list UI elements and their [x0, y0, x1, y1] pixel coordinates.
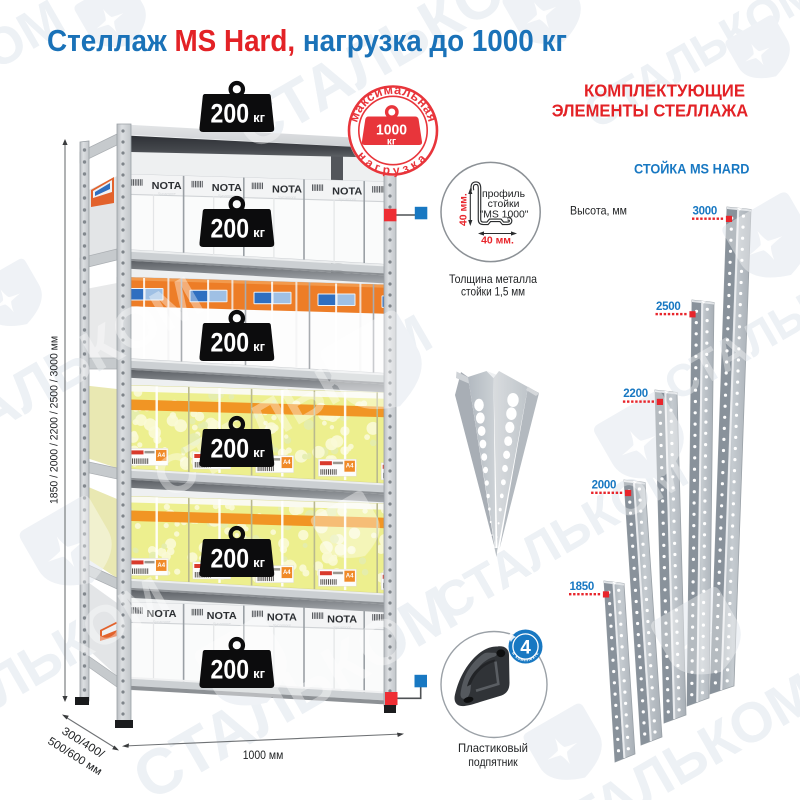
svg-text:КОМПЛЕКТУЮЩИЕ: КОМПЛЕКТУЮЩИЕ	[584, 81, 745, 101]
svg-text:40 мм.: 40 мм.	[481, 236, 514, 247]
svg-text:40 мм.: 40 мм.	[459, 193, 470, 226]
svg-text:200: 200	[211, 655, 250, 685]
svg-text:Стеллаж MS Hard, нагрузка до 1: Стеллаж MS Hard, нагрузка до 1000 кг	[47, 24, 567, 58]
svg-text:A4: A4	[283, 570, 291, 576]
svg-text:ЭЛЕМЕНТЫ СТЕЛЛАЖА: ЭЛЕМЕНТЫ СТЕЛЛАЖА	[552, 101, 749, 121]
svg-text:кг: кг	[253, 445, 266, 460]
svg-text:A4: A4	[283, 460, 291, 466]
svg-text:кг: кг	[253, 110, 266, 125]
svg-text:1850: 1850	[570, 581, 595, 593]
svg-text:200: 200	[211, 214, 250, 244]
svg-text:1000 мм: 1000 мм	[243, 750, 284, 762]
svg-text:кг: кг	[253, 666, 266, 681]
svg-text:Высота, мм: Высота, мм	[570, 204, 627, 218]
svg-text:4: 4	[520, 638, 531, 659]
svg-text:Sycamore: Sycamore	[278, 195, 297, 200]
svg-text:A4: A4	[346, 574, 354, 580]
svg-text:подпятник: подпятник	[468, 755, 518, 769]
svg-text:A4: A4	[157, 563, 165, 569]
svg-text:Sycamore: Sycamore	[158, 191, 177, 196]
svg-text:кг: кг	[253, 555, 266, 570]
svg-text:СТОЙКА MS HARD: СТОЙКА MS HARD	[634, 160, 749, 177]
svg-text:Sycamore: Sycamore	[273, 623, 292, 628]
svg-text:стойки 1,5 мм: стойки 1,5 мм	[461, 285, 525, 299]
svg-text:1850 / 2000 / 2200 / 2500 / 30: 1850 / 2000 / 2200 / 2500 / 3000 мм	[49, 336, 61, 504]
svg-text:Sycamore: Sycamore	[338, 196, 357, 201]
svg-text:200: 200	[211, 99, 250, 129]
svg-text:кг: кг	[253, 225, 266, 240]
svg-text:2500: 2500	[656, 301, 681, 313]
svg-text:2000: 2000	[592, 479, 617, 491]
svg-text:кг: кг	[253, 339, 266, 354]
svg-text:3000: 3000	[693, 205, 718, 217]
svg-text:Sycamore: Sycamore	[213, 621, 232, 626]
svg-text:A4: A4	[346, 464, 354, 470]
svg-text:2200: 2200	[623, 388, 648, 400]
svg-text:200: 200	[211, 434, 250, 464]
svg-text:200: 200	[211, 328, 250, 358]
svg-text:200: 200	[211, 544, 250, 574]
svg-text:кг: кг	[387, 137, 396, 148]
svg-text:Пластиковый: Пластиковый	[458, 741, 528, 755]
svg-text:"MS 1000": "MS 1000"	[480, 209, 529, 220]
